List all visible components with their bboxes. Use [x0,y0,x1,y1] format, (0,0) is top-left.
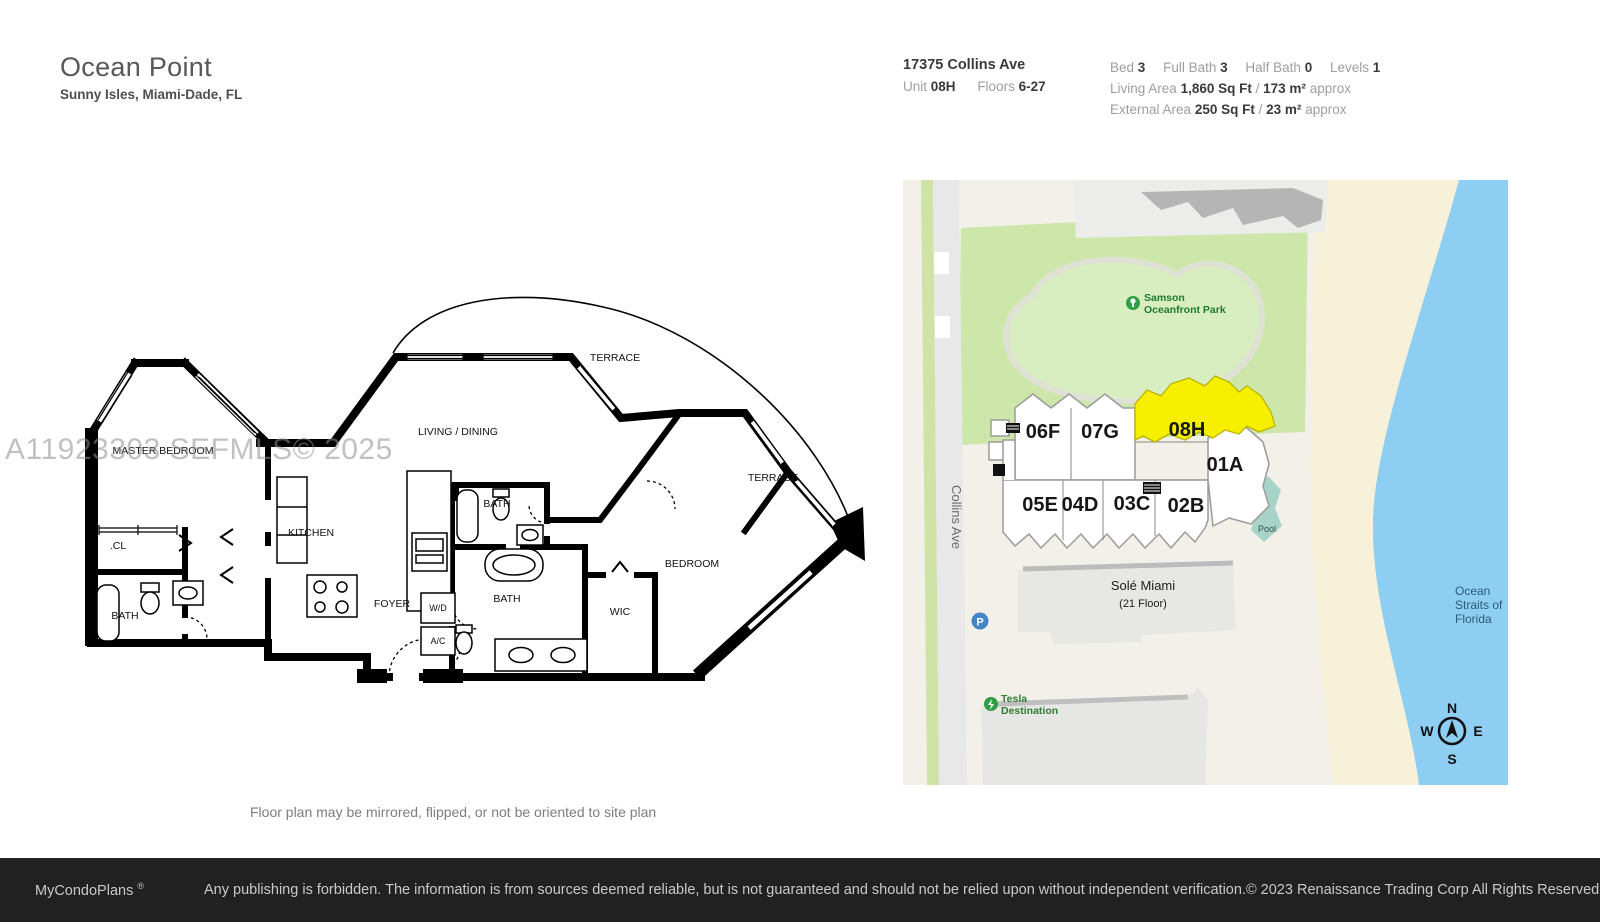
label-kitchen: KITCHEN [288,527,334,539]
pool-label: Pool [1258,524,1276,534]
ocean-label-2: Straits of [1455,598,1503,612]
parking-icon: P [972,613,989,630]
stats-line-1: Bed 3 Full Bath 3 Half Bath 0 Levels 1 [1110,57,1380,78]
compass-s: S [1447,751,1456,767]
ocean-label-3: Florida [1455,612,1492,626]
road-mark-2 [935,316,950,338]
unit-label-04d: 04D [1062,494,1099,516]
floorplan-disclaimer-note: Floor plan may be mirrored, flipped, or … [250,804,656,820]
door-chevrons [179,529,628,583]
stats-line-3: External Area 250 Sq Ft / 23 m² approx [1110,99,1380,120]
mls-watermark: A11923303 SEFMLS© 2025 [5,433,393,467]
condo-plan-page: Ocean Point Sunny Isles, Miami-Dade, FL … [0,0,1600,922]
compass-n: N [1447,700,1457,716]
unit-label: Unit [903,79,927,94]
site-map: Collins Ave Solé Miami (21 Floor) Pool [903,180,1508,785]
footer-brand: MyCondoPlans ® [35,881,144,899]
tesla-label-1: Tesla [1001,693,1027,705]
street-address: 17375 Collins Ave [903,57,1025,73]
label-bath-lower: BATH [493,593,520,605]
label-bath-upper: BATH [483,498,510,510]
label-terrace-right: TERRACE [748,472,798,484]
sole-floors: (21 Floor) [1119,598,1167,610]
unit-label-05e: 05E [1022,494,1058,516]
stats-line-2: Living Area 1,860 Sq Ft / 173 m² approx [1110,78,1380,99]
park-label-1: Samson [1144,292,1185,304]
building-location: Sunny Isles, Miami-Dade, FL [60,87,242,102]
park-poi-icon [1126,296,1140,310]
park-label-2: Oceanfront Park [1144,304,1226,316]
unit-label-06f: 06F [1026,421,1060,443]
tesla-label-2: Destination [1001,705,1058,717]
unit-floors-line: Unit 08H Floors 6-27 [903,79,1046,94]
unit-label-08h: 08H [1169,419,1206,441]
road-mark-1 [934,252,949,274]
footer-bar: MyCondoPlans ® Any publishing is forbidd… [0,858,1600,922]
footer-copyright: © 2023 Renaissance Trading Corp All Righ… [1246,882,1599,898]
unit-label-01a: 01A [1207,454,1244,476]
label-ac: A/C [430,636,446,646]
building-title: Ocean Point [60,52,212,83]
label-closet: .CL [110,540,127,552]
label-wic: WIC [610,606,631,618]
registered-mark: ® [137,881,144,891]
ocean-label-1: Ocean [1455,584,1490,598]
floor-plan: MASTER BEDROOM TERRACE LIVING / DINING T… [55,285,865,685]
floors-label: Floors [977,79,1015,94]
label-living-dining: LIVING / DINING [418,426,498,438]
label-foyer: FOYER [374,598,411,610]
unit-label-02b: 02B [1168,495,1205,517]
footer-disclaimer: Any publishing is forbidden. The informa… [204,882,1246,898]
unit-label-07g: 07G [1081,421,1119,443]
label-wd: W/D [429,603,447,613]
unit-value: 08H [931,79,956,94]
floors-value: 6-27 [1019,79,1046,94]
label-terrace-top: TERRACE [590,352,640,364]
street-label: Collins Ave [949,485,964,549]
compass-e: E [1473,723,1482,739]
unit-label-03c: 03C [1114,493,1151,515]
tesla-icon [984,697,998,711]
svg-text:P: P [976,617,983,629]
label-bath-master: BATH [111,610,138,622]
compass-w: W [1420,723,1434,739]
lower-bath-fixtures [456,549,587,671]
unit-stats: Bed 3 Full Bath 3 Half Bath 0 Levels 1 L… [1110,57,1380,120]
label-bedroom: BEDROOM [665,558,719,570]
sole-name: Solé Miami [1111,578,1175,593]
